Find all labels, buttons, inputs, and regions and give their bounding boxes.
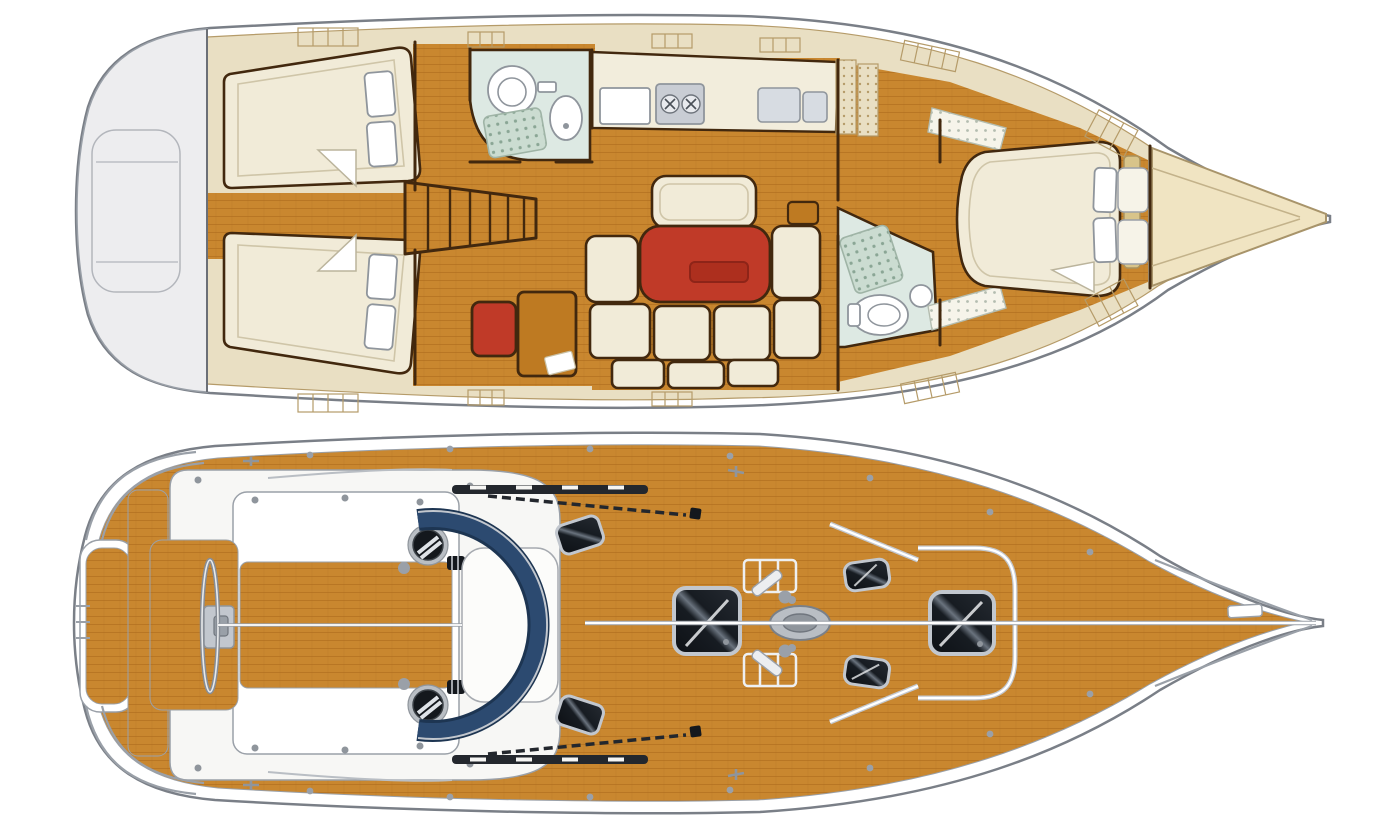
galley-vent-locker xyxy=(858,64,878,136)
head-port-sink xyxy=(550,96,582,140)
forward-locker xyxy=(1118,220,1148,264)
salon-table-insert xyxy=(690,262,748,282)
pillow xyxy=(366,254,397,300)
salon-settee-left xyxy=(586,236,638,302)
pillow xyxy=(364,71,396,117)
deck-block xyxy=(788,644,796,652)
head-forward-sink xyxy=(910,285,932,307)
galley xyxy=(592,52,878,136)
deck-hatch-port xyxy=(843,558,890,592)
salon-settee-right xyxy=(772,226,820,298)
salon-bar-box xyxy=(788,202,818,224)
bow-section xyxy=(1150,146,1326,288)
centerlines xyxy=(218,623,1316,625)
forward-pillow xyxy=(1093,168,1117,213)
forward-hatch-latch xyxy=(977,641,983,647)
salon-settee-cushion xyxy=(654,306,710,360)
deck-plan-view xyxy=(74,433,1323,814)
transom-swim-platform xyxy=(77,29,207,392)
salon-settee-cushion-lower xyxy=(668,362,724,388)
interior-plan-view xyxy=(76,15,1330,412)
head-port-shower-grate xyxy=(483,107,547,158)
skylight-latch xyxy=(723,639,729,645)
toilet-flush xyxy=(538,82,556,92)
toilet-tank xyxy=(848,304,860,326)
diagram-svg xyxy=(0,0,1400,840)
sink-drain xyxy=(563,123,569,129)
pillow xyxy=(366,121,397,167)
galley-worktop xyxy=(600,88,650,124)
genoa-car xyxy=(689,725,701,737)
salon-settee-cushion-lower xyxy=(612,360,664,388)
galley-sink xyxy=(758,88,800,122)
salon-settee-cushion xyxy=(714,306,770,360)
salon-settee-cushion-lower xyxy=(728,360,778,386)
nav-station-seat xyxy=(472,302,516,356)
swim-platform xyxy=(86,548,130,704)
pillow xyxy=(364,304,396,350)
salon-settee-cushion xyxy=(774,300,820,358)
deck-hatch-starboard xyxy=(843,655,890,689)
yacht-layout-diagram xyxy=(0,0,1400,840)
salon-settee-cushion xyxy=(590,304,650,358)
forward-pillow xyxy=(1093,218,1117,263)
deck-block xyxy=(788,596,796,604)
galley-sink-small xyxy=(803,92,827,122)
head-port xyxy=(470,50,590,160)
anchor-roller xyxy=(1228,604,1263,618)
head-port-toilet xyxy=(488,66,536,114)
forward-locker xyxy=(1118,168,1148,212)
genoa-car xyxy=(689,507,701,519)
